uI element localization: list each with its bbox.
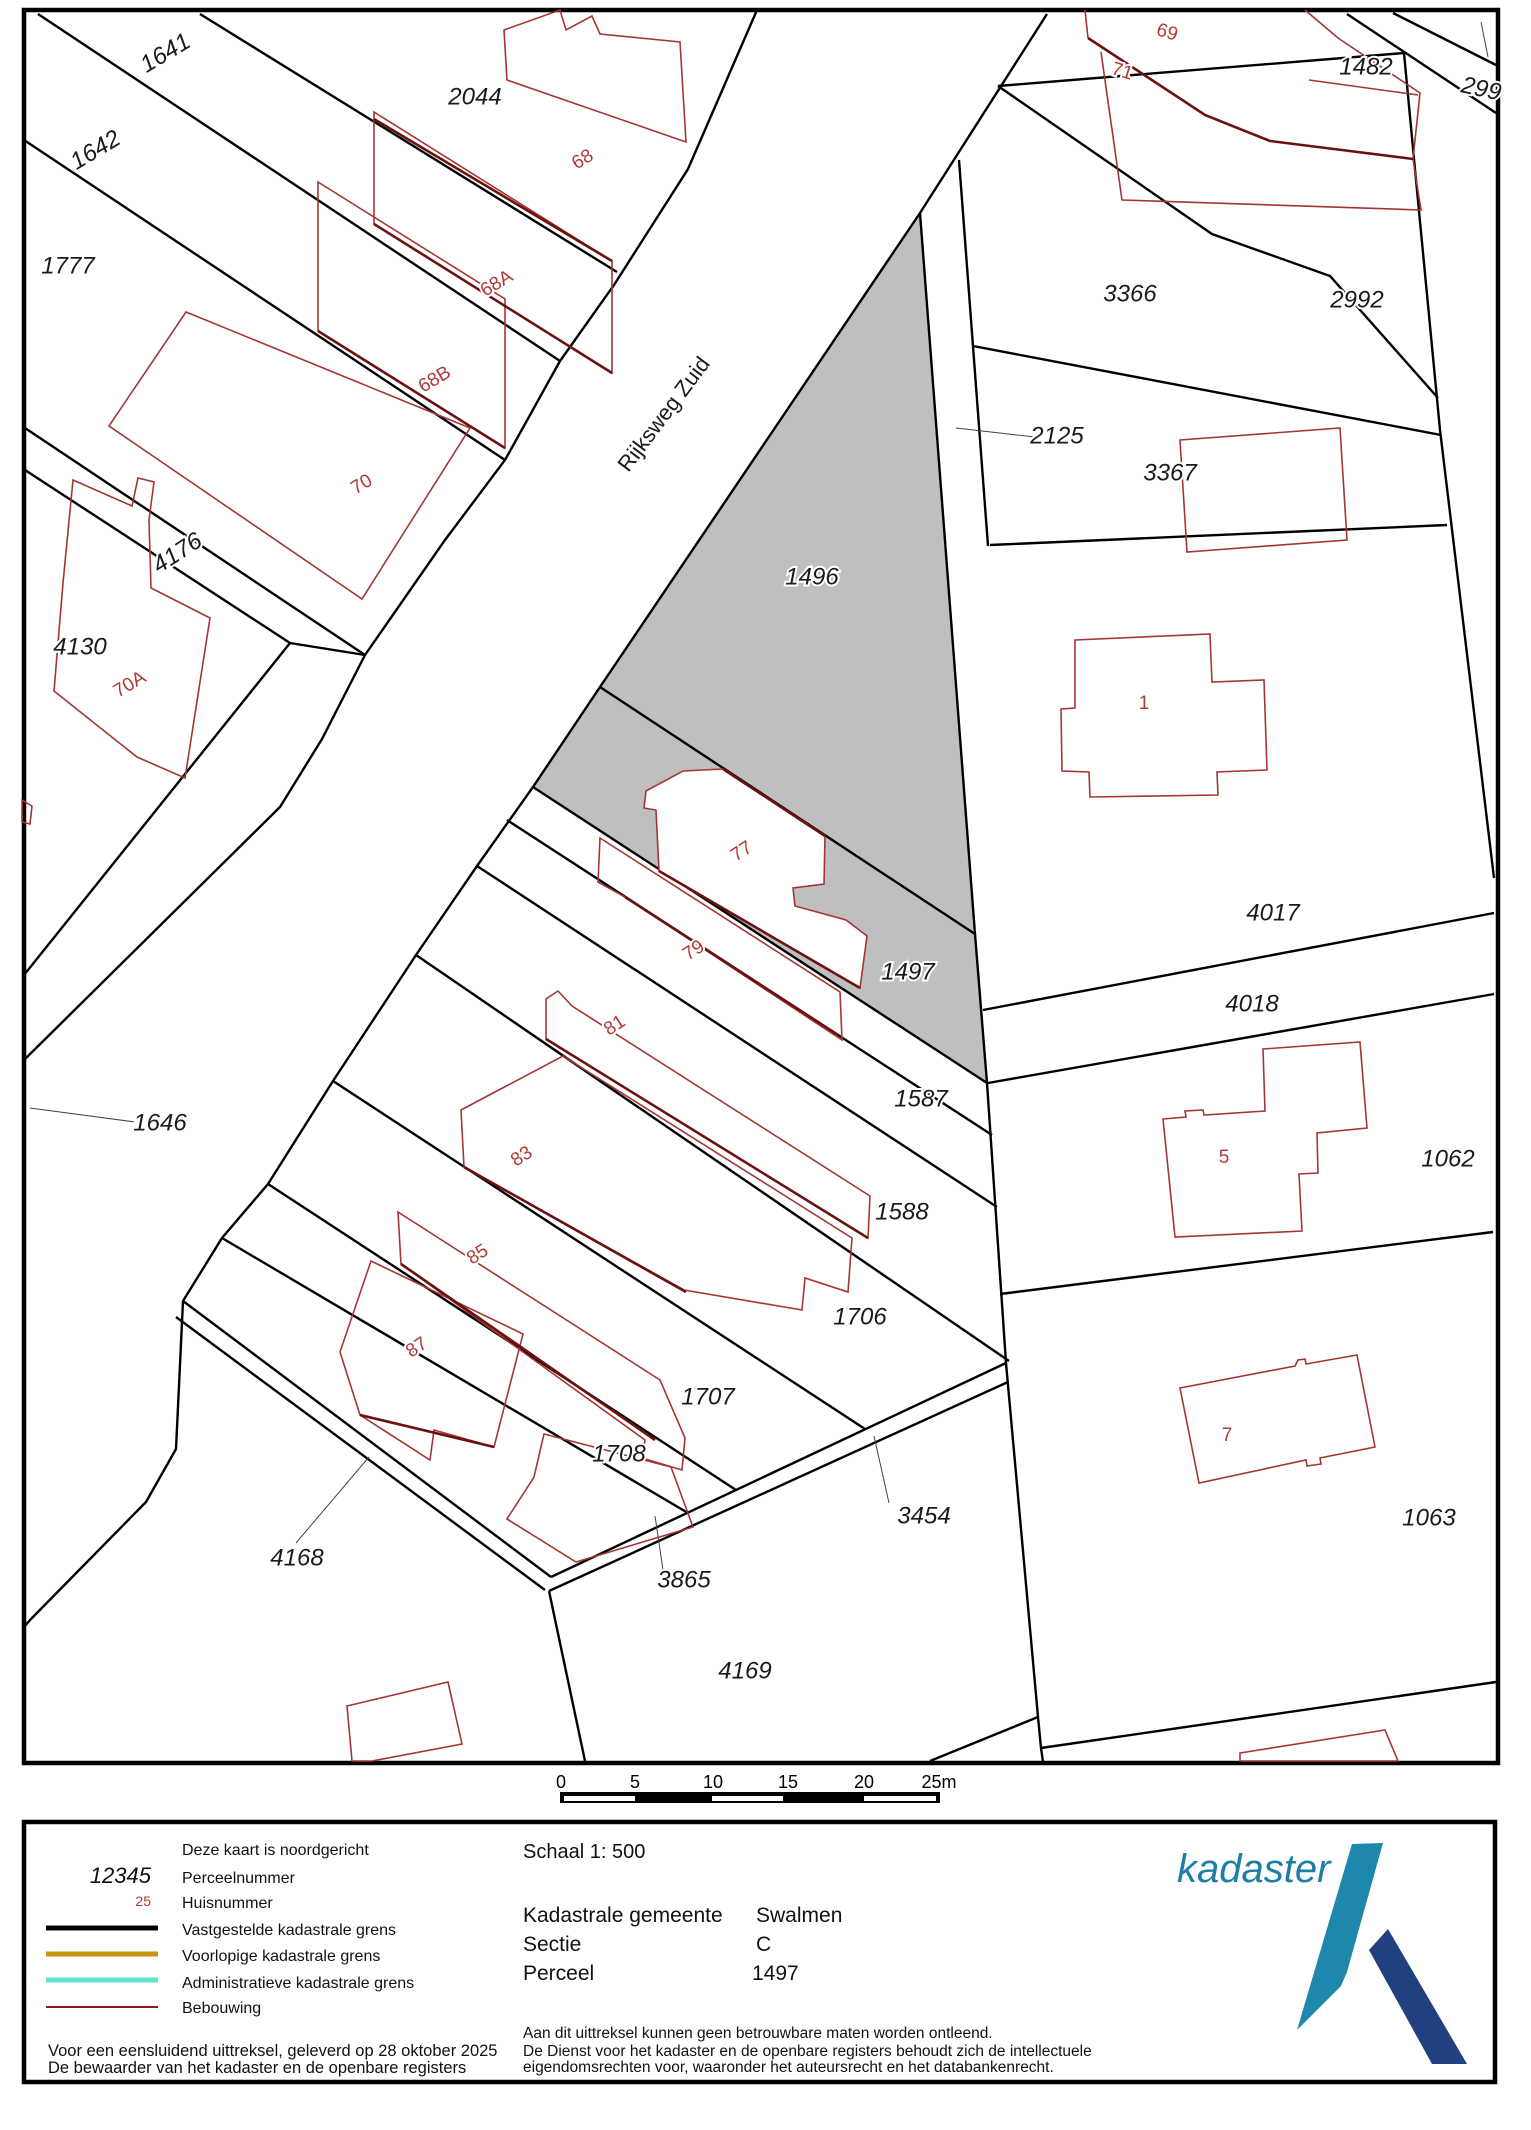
svg-text:1496: 1496 <box>785 563 839 590</box>
svg-text:4169: 4169 <box>718 1657 771 1684</box>
svg-text:Sectie: Sectie <box>523 1933 581 1956</box>
svg-text:Schaal 1: 500: Schaal 1: 500 <box>523 1841 645 1863</box>
svg-text:1706: 1706 <box>833 1303 887 1330</box>
svg-text:De Dienst voor het kadaster en: De Dienst voor het kadaster en de openba… <box>523 2043 1092 2060</box>
svg-text:1707: 1707 <box>681 1383 736 1410</box>
svg-text:1708: 1708 <box>592 1440 646 1467</box>
svg-text:2992: 2992 <box>1329 286 1383 313</box>
svg-text:Voor een eensluidend uittrekse: Voor een eensluidend uittreksel, gelever… <box>48 2042 498 2060</box>
svg-text:10: 10 <box>703 1772 723 1792</box>
svg-text:Bebouwing: Bebouwing <box>182 2000 261 2017</box>
svg-text:1482: 1482 <box>1339 53 1392 80</box>
svg-text:Perceelnummer: Perceelnummer <box>182 1870 296 1887</box>
svg-text:De bewaarder van het kadaster: De bewaarder van het kadaster en de open… <box>48 2059 466 2077</box>
svg-text:Aan dit uittreksel kunnen geen: Aan dit uittreksel kunnen geen betrouwba… <box>523 2025 993 2042</box>
svg-text:eigendomsrechten voor, waarond: eigendomsrechten voor, waaronder het aut… <box>523 2059 1054 2076</box>
svg-text:Voorlopige kadastrale grens: Voorlopige kadastrale grens <box>182 1948 380 1965</box>
svg-text:1062: 1062 <box>1421 1145 1474 1172</box>
svg-text:1588: 1588 <box>875 1198 929 1225</box>
svg-text:3865: 3865 <box>657 1566 711 1593</box>
svg-text:3367: 3367 <box>1143 459 1198 486</box>
svg-text:3366: 3366 <box>1103 280 1157 307</box>
svg-text:5: 5 <box>1219 1147 1230 1168</box>
svg-text:7: 7 <box>1222 1425 1233 1446</box>
svg-text:Vastgestelde kadastrale grens: Vastgestelde kadastrale grens <box>182 1922 396 1939</box>
svg-text:1: 1 <box>1139 693 1150 714</box>
svg-text:20: 20 <box>854 1772 874 1792</box>
svg-text:4168: 4168 <box>270 1544 324 1571</box>
svg-text:1497: 1497 <box>752 1962 799 1985</box>
svg-text:3454: 3454 <box>897 1502 950 1529</box>
svg-text:C: C <box>756 1933 771 1956</box>
svg-text:4017: 4017 <box>1246 899 1301 926</box>
svg-text:2125: 2125 <box>1029 422 1084 449</box>
svg-text:Swalmen: Swalmen <box>756 1904 842 1927</box>
svg-text:4130: 4130 <box>53 633 107 660</box>
svg-text:1646: 1646 <box>133 1109 187 1136</box>
svg-text:1063: 1063 <box>1402 1504 1456 1531</box>
svg-text:2044: 2044 <box>447 83 501 110</box>
svg-text:1777: 1777 <box>41 252 96 279</box>
svg-text:Huisnummer: Huisnummer <box>182 1895 273 1912</box>
svg-text:kadaster: kadaster <box>1177 1847 1332 1891</box>
svg-text:1497: 1497 <box>881 958 936 985</box>
svg-text:Kadastrale gemeente: Kadastrale gemeente <box>523 1904 723 1927</box>
svg-text:4018: 4018 <box>1225 990 1279 1017</box>
svg-text:Perceel: Perceel <box>523 1962 594 1985</box>
svg-text:Deze kaart is noordgericht: Deze kaart is noordgericht <box>182 1842 369 1859</box>
svg-text:Administratieve kadastrale gre: Administratieve kadastrale grens <box>182 1975 414 1992</box>
svg-text:12345: 12345 <box>90 1863 152 1888</box>
svg-text:25m: 25m <box>921 1772 956 1792</box>
svg-text:5: 5 <box>630 1772 640 1792</box>
svg-text:15: 15 <box>778 1772 798 1792</box>
svg-text:1587: 1587 <box>894 1085 949 1112</box>
svg-text:25: 25 <box>135 1893 151 1909</box>
svg-text:0: 0 <box>556 1772 566 1792</box>
